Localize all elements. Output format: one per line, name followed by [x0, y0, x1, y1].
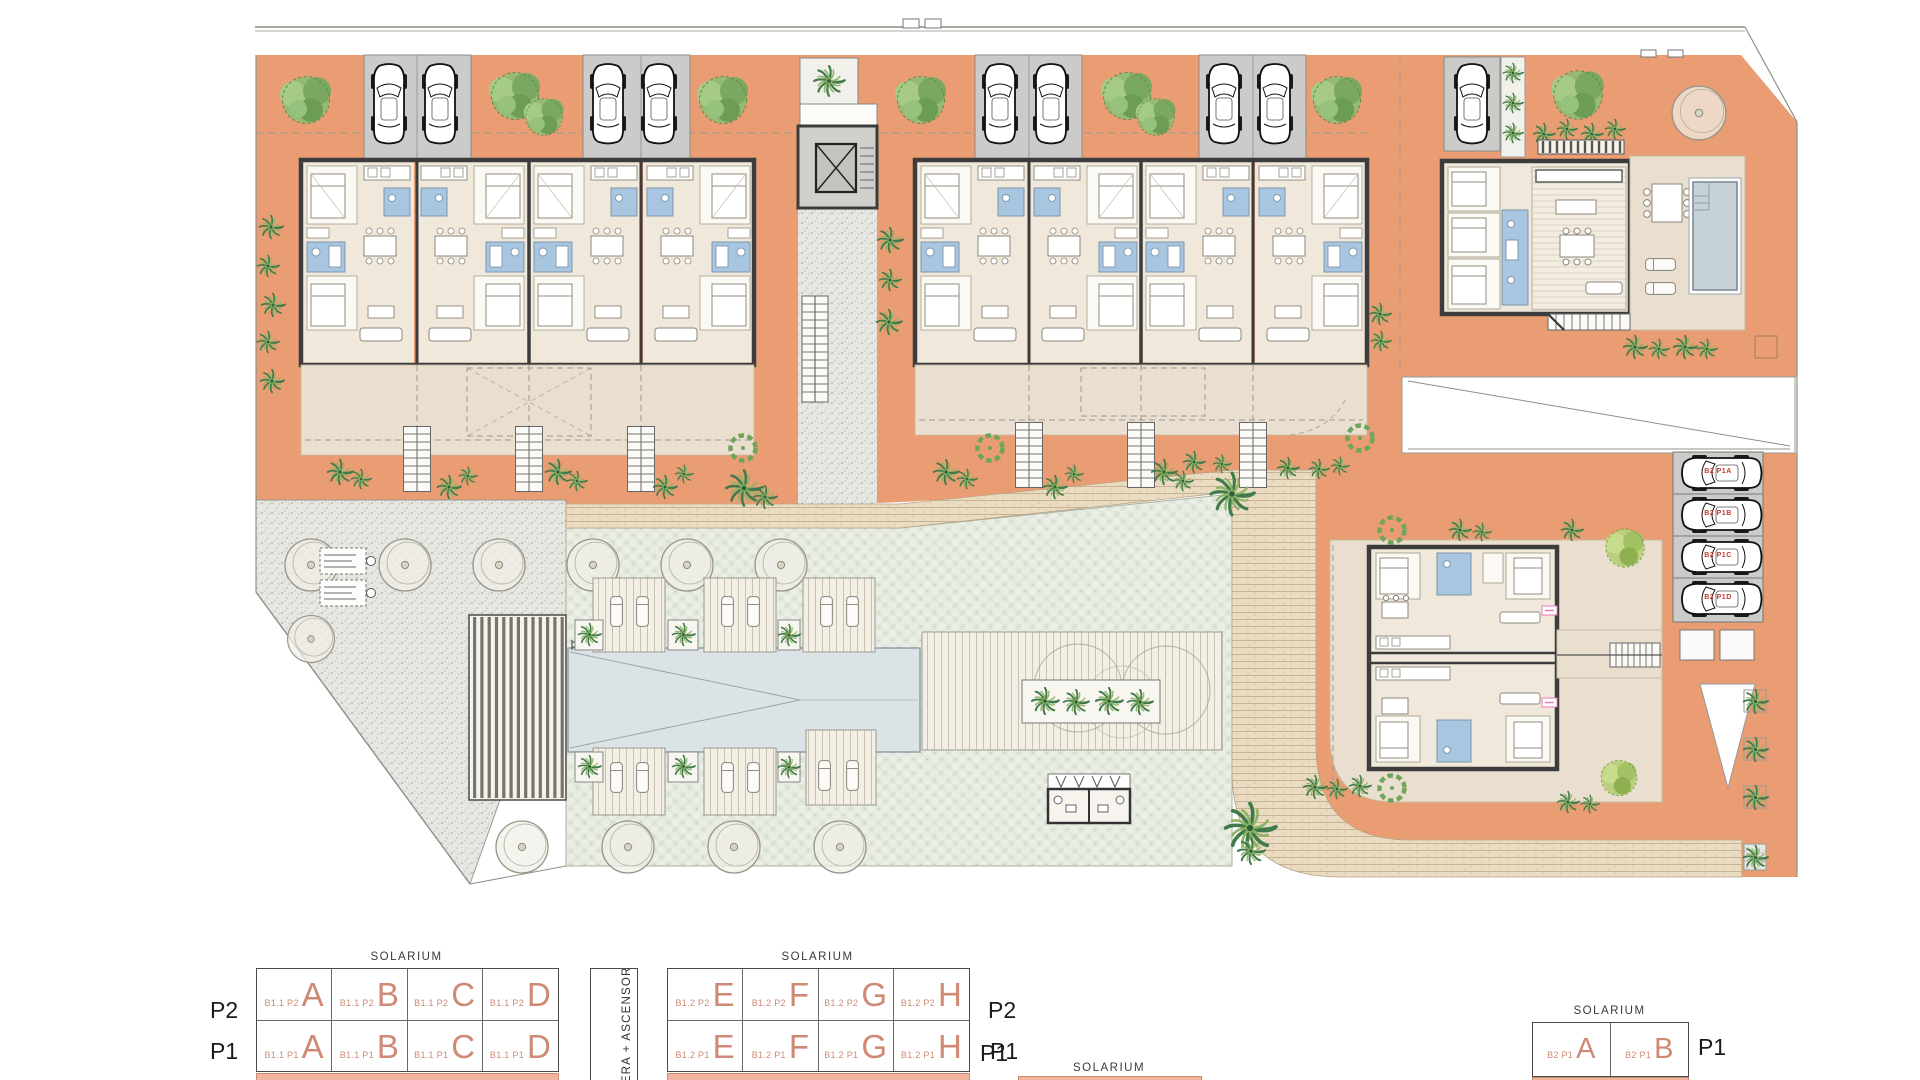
- legend-cell: B1.1 P1C: [408, 1021, 483, 1071]
- toilets-hut: [1048, 774, 1130, 823]
- car-icon: [422, 64, 458, 144]
- parking-stall-label: B2 P1D: [1686, 594, 1750, 601]
- legend-cell: B1.2 P2F: [743, 969, 818, 1020]
- east-deck: [922, 632, 1222, 750]
- legend-cell: B1.1 P2A: [257, 969, 332, 1020]
- villa-terrace: [1630, 156, 1745, 330]
- stairs-icon: [404, 426, 431, 492]
- legend-cell: B1.2 P1H: [894, 1021, 969, 1071]
- site-plan-page: SOLARIUM SOLARIUM P2 P1 B1.1 P2A B1.1 P2…: [0, 0, 1920, 1080]
- parking-stall-label: B2 P1A: [1686, 468, 1750, 475]
- solarium-heading-bottom: SOLARIUM: [1018, 1062, 1200, 1074]
- legend-row-b12-p2: B1.2 P2E B1.2 P2F B1.2 P2G B1.2 P2H: [668, 969, 969, 1020]
- villa-pool: [1689, 178, 1741, 294]
- legend-cell: B1.1 P1B: [332, 1021, 407, 1071]
- legend-row-b12-p1: B1.2 P1E B1.2 P1F B1.2 P1G B1.2 P1H: [668, 1020, 969, 1071]
- villa-building: [1442, 161, 1630, 314]
- legend-cell: B1.2 P1G: [819, 1021, 894, 1071]
- level-label-p1-b2: P1: [1698, 1034, 1726, 1061]
- legend-cell: B2 P1B: [1611, 1023, 1689, 1076]
- legend-row-b11-p2: B1.1 P2A B1.1 P2B B1.1 P2C B1.1 P2D: [257, 969, 558, 1020]
- car-icon: [1206, 64, 1242, 144]
- parking-stall-label: B2 P1C: [1686, 552, 1750, 559]
- legend-cell: B1.2 P2G: [819, 969, 894, 1020]
- lounger-icon: [611, 597, 623, 627]
- b2-entry: [1557, 630, 1662, 678]
- legend-cell: B1.1 P2B: [332, 969, 407, 1020]
- legend-cell: B1.1 P1D: [483, 1021, 558, 1071]
- legend-row-b2-p1: B2 P1A B2 P1B: [1533, 1023, 1688, 1076]
- car-icon: [641, 64, 677, 144]
- legend-table-b11: B1.1 P2A B1.1 P2B B1.1 P2C B1.1 P2D B1.1…: [256, 968, 559, 1072]
- legend-table-b2: B2 P1A B2 P1B: [1532, 1022, 1689, 1077]
- solarium-bar: [256, 1073, 559, 1080]
- solarium-bar: [1018, 1076, 1202, 1080]
- car-icon: [1257, 64, 1293, 144]
- car-icon: [1454, 64, 1490, 144]
- long-staircase: [802, 296, 828, 402]
- building-b2: [1369, 547, 1557, 769]
- legend-cell: B1.1 P2C: [408, 969, 483, 1020]
- legend-cell: B1.1 P1A: [257, 1021, 332, 1071]
- legend-cell: B1.2 P2H: [894, 969, 969, 1020]
- stairs-icon: [1016, 422, 1043, 488]
- pergola: [469, 615, 566, 800]
- legend-cell: B1.1 P2D: [483, 969, 558, 1020]
- vehicle-ramp: [1402, 377, 1795, 453]
- level-label-p2-right: P2: [988, 997, 1016, 1024]
- solarium-heading-b11: SOLARIUM: [256, 951, 557, 963]
- car-icon: [590, 64, 626, 144]
- villa-entry-stairs: [1548, 314, 1630, 330]
- car-icon: [371, 64, 407, 144]
- parking-stall-label: B2 P1B: [1686, 510, 1750, 517]
- stairs-icon: [1240, 422, 1267, 488]
- unit-code: B1.1 P2: [265, 998, 299, 1008]
- tree-icon: [1672, 86, 1726, 140]
- legend-cell: B1.2 P1E: [668, 1021, 743, 1071]
- legend-table-b12: B1.2 P2E B1.2 P2F B1.2 P2G B1.2 P2H B1.2…: [667, 968, 970, 1072]
- unit-letter: A: [302, 983, 324, 1007]
- stairs-elevator-strip: ESCALERA + ASCENSOR: [590, 968, 638, 1080]
- villa-pergola: [1538, 140, 1624, 154]
- solarium-heading-b12: SOLARIUM: [667, 951, 968, 963]
- building-b11: [301, 160, 754, 365]
- solarium-bar: [667, 1073, 970, 1080]
- legend-cell: B2 P1A: [1533, 1023, 1611, 1076]
- stairs-icon: [628, 426, 655, 492]
- legend-cell: B1.2 P1F: [743, 1021, 818, 1071]
- car-icon: [982, 64, 1018, 144]
- legend-row-b11-p1: B1.1 P1A B1.1 P1B B1.1 P1C B1.1 P1D: [257, 1020, 558, 1071]
- stairs-icon: [516, 426, 543, 492]
- stairs-elevator-label: ESCALERA + ASCENSOR: [621, 968, 633, 1080]
- site-plan-drawing: [0, 0, 1920, 1080]
- level-label-p2-left: P2: [210, 997, 238, 1024]
- solarium-heading-b2: SOLARIUM: [1532, 1005, 1687, 1017]
- building-b12: [915, 160, 1367, 365]
- level-label-p1-left: P1: [210, 1038, 238, 1065]
- car-icon: [1033, 64, 1069, 144]
- legend-cell: B1.2 P2E: [668, 969, 743, 1020]
- level-label-p1-bottom: P1: [980, 1040, 1008, 1067]
- stairs-icon: [1128, 422, 1155, 488]
